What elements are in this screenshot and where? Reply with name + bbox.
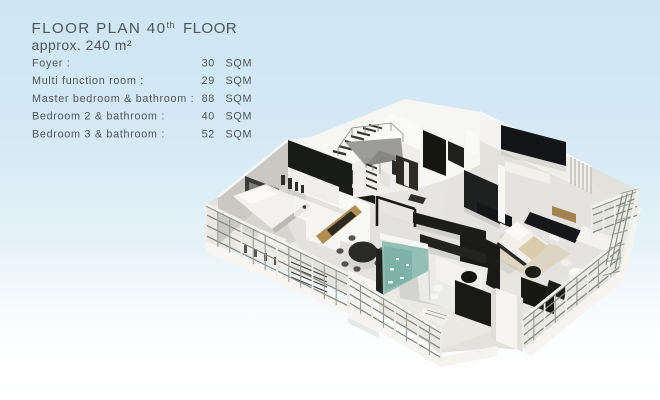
svg-text:FLOOR: FLOOR xyxy=(183,20,237,37)
svg-text:40: 40 xyxy=(202,111,215,123)
svg-text:SQM: SQM xyxy=(226,128,253,140)
svg-text:30: 30 xyxy=(202,58,215,70)
svg-text:th: th xyxy=(167,20,175,30)
svg-text:Multi function room :: Multi function room : xyxy=(32,75,144,87)
svg-text:Master bedroom & bathroom :: Master bedroom & bathroom : xyxy=(32,93,194,105)
svg-text:29: 29 xyxy=(202,75,215,87)
svg-text:Bedroom 2 & bathroom :: Bedroom 2 & bathroom : xyxy=(32,111,165,123)
svg-text:SQM: SQM xyxy=(226,58,253,70)
svg-text:SQM: SQM xyxy=(226,111,253,123)
svg-text:Foyer :: Foyer : xyxy=(32,58,71,70)
svg-text:SQM: SQM xyxy=(226,75,253,87)
svg-text:Bedroom 3 & bathroom :: Bedroom 3 & bathroom : xyxy=(32,128,165,140)
svg-text:approx. 240 m²: approx. 240 m² xyxy=(32,37,132,53)
svg-text:SQM: SQM xyxy=(226,93,253,105)
svg-text:FLOOR PLAN 40: FLOOR PLAN 40 xyxy=(32,20,167,37)
svg-text:88: 88 xyxy=(202,93,215,105)
svg-text:52: 52 xyxy=(202,128,215,140)
